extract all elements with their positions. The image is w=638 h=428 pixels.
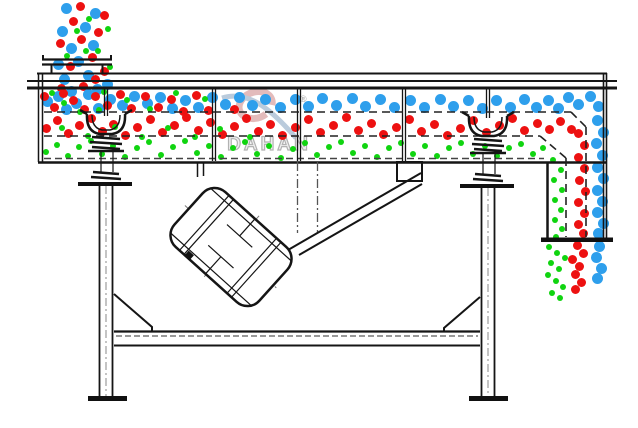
diagram-lines	[0, 0, 638, 428]
brace-right	[444, 297, 480, 331]
spring-mount-left	[78, 110, 132, 186]
brace-left	[114, 294, 152, 331]
foot-pad-left	[88, 396, 127, 401]
support-leg-left	[88, 186, 127, 401]
discharge-chute	[541, 163, 613, 242]
foot-pad-right	[469, 396, 508, 401]
spring-mount-right	[460, 112, 514, 188]
screen-box-frame	[27, 73, 617, 240]
vibration-motor	[157, 174, 305, 319]
feed-inlet	[42, 55, 112, 73]
base-beam	[114, 332, 480, 346]
vibrating-screen-diagram: ® DAHAN	[0, 0, 638, 428]
support-leg-right	[469, 188, 508, 401]
